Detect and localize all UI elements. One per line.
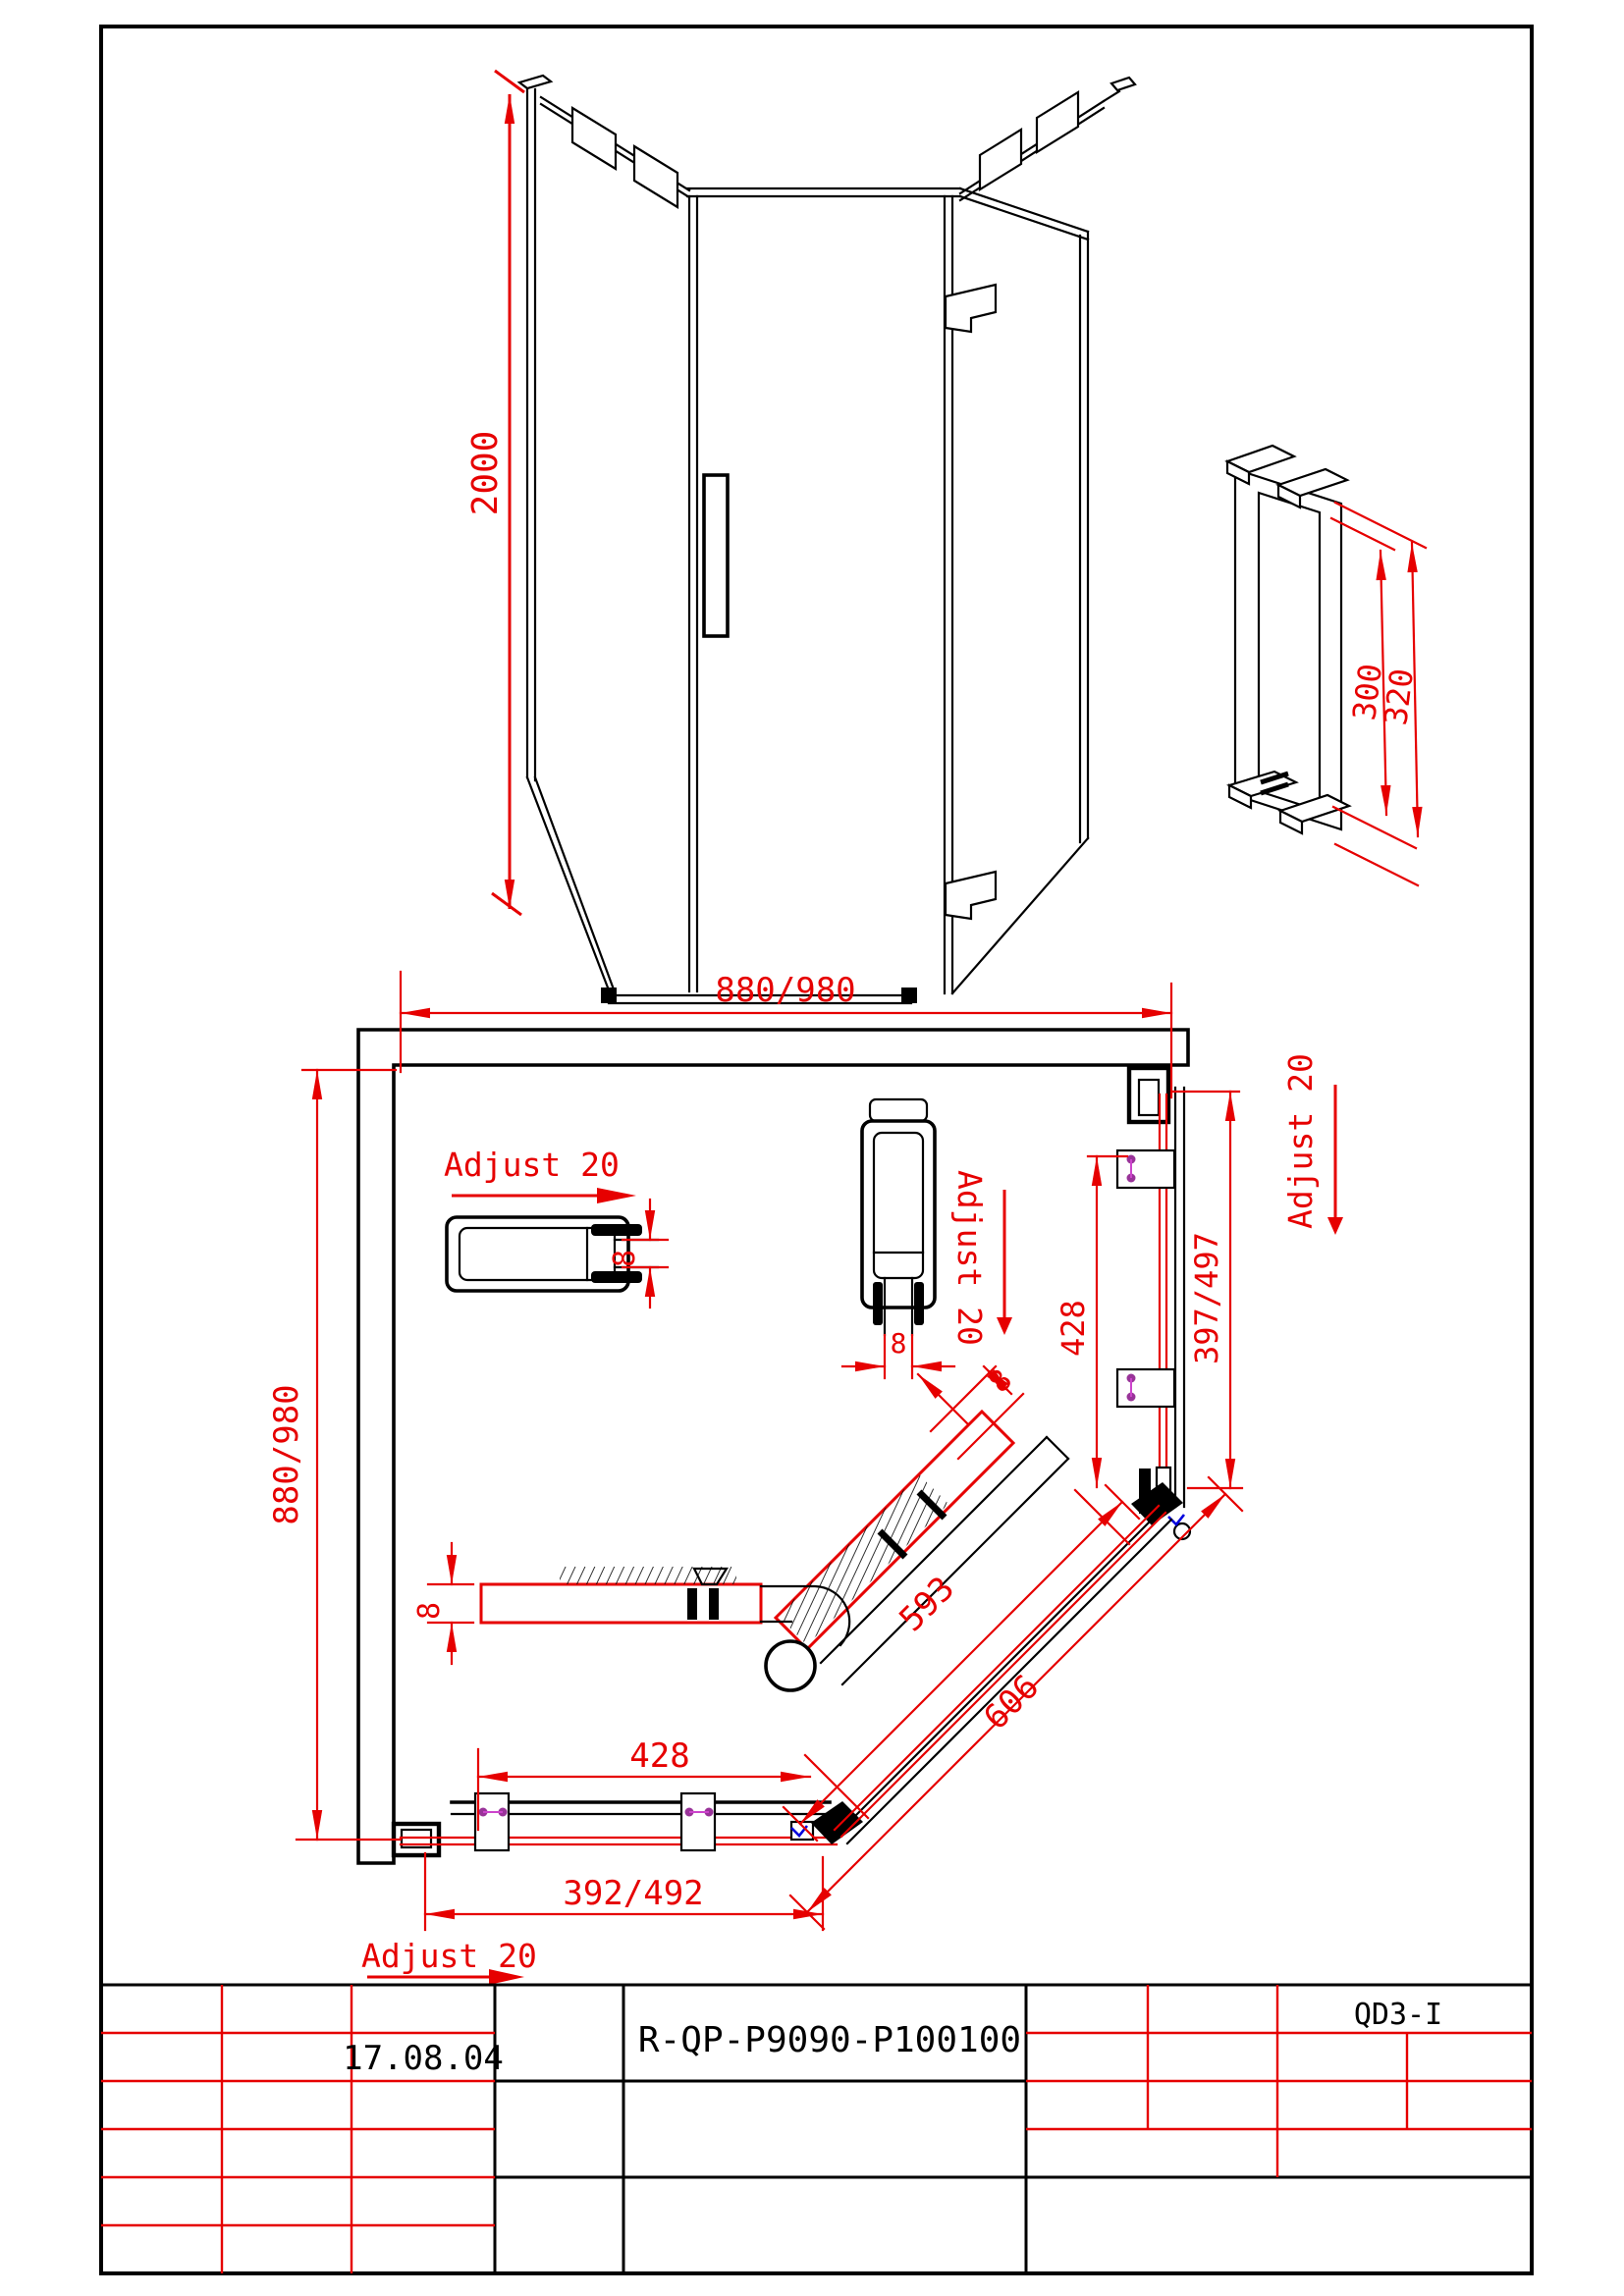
handle-knob-section [766,1641,815,1690]
right-adjust-dim-label: 397/497 [1188,1232,1225,1364]
cad-drawing: 2000 300 320 [0,0,1624,2296]
adjust-label-right: Adjust 20 [1281,1053,1320,1229]
glass-dim-left-profile: 8 [608,1250,642,1267]
adjust-middle: Adjust 20 [950,1170,1012,1346]
adjust-bottom: Adjust 20 [361,1937,537,1985]
bottom-panel-dim-label: 428 [629,1736,689,1776]
bottom-adjust-dim-label: 392/492 [563,1874,703,1913]
depth-dim-label: 880/980 [267,1384,306,1524]
right-panel-dim-label: 428 [1055,1300,1092,1357]
adjust-left: Adjust 20 [444,1146,636,1203]
title-model: R-QP-P9090-P100100 [638,2020,1021,2060]
handle-dim-320-label: 320 [1377,667,1421,727]
adjust-label-middle: Adjust 20 [950,1170,989,1346]
adjust-label-left: Adjust 20 [444,1146,620,1184]
glass-dim-bottom-profile: 8 [412,1602,447,1620]
drawing-sheet: 2000 300 320 [0,0,1624,2296]
glass-dim-top-profile: 8 [891,1327,907,1360]
iso-height-dim-label: 2000 [465,431,506,516]
width-dim-label: 880/980 [715,971,855,1010]
title-code: QD3-I [1354,1998,1442,2032]
handle-inner [1259,493,1320,811]
title-date: 17.08.04 [343,2039,504,2078]
adjust-label-bottom: Adjust 20 [361,1937,537,1975]
